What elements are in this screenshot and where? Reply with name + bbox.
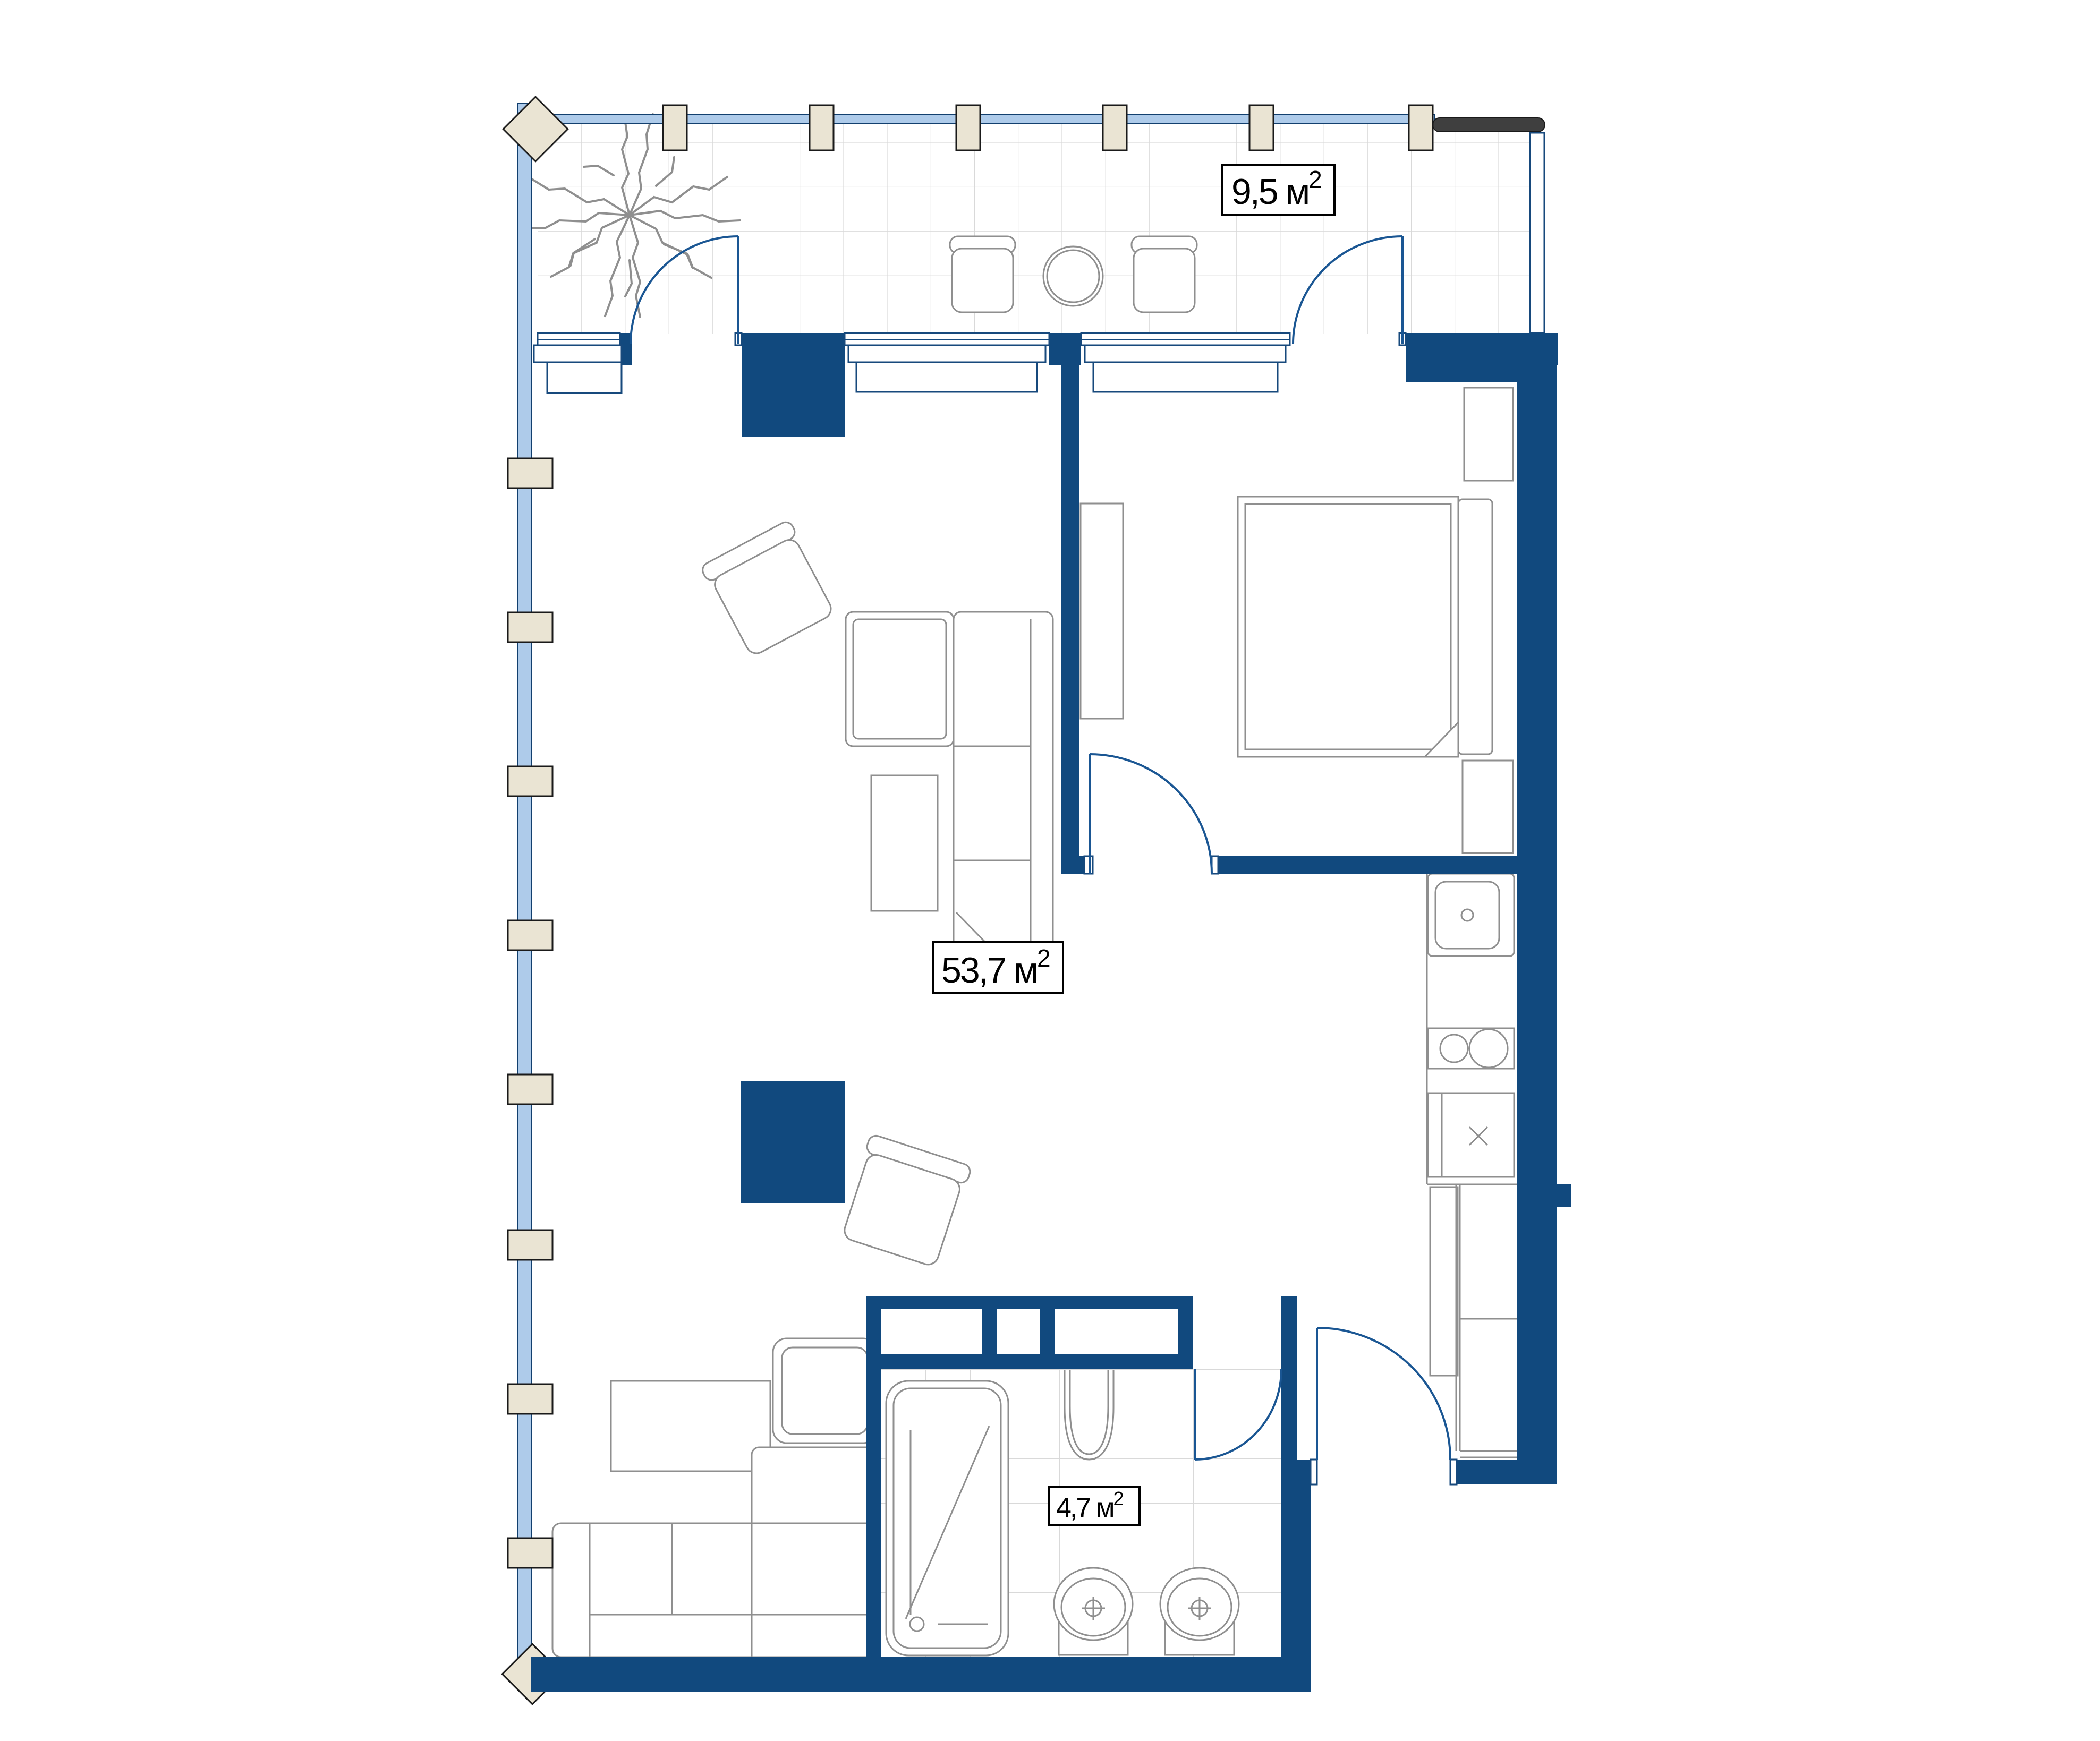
armchair — [838, 1134, 972, 1269]
wall-bathroom-left — [866, 1296, 881, 1692]
partition-head — [1049, 333, 1081, 365]
dishwasher — [1428, 1093, 1514, 1177]
coffee-table — [611, 1381, 770, 1471]
toilet — [1065, 1370, 1113, 1460]
armchair — [700, 519, 838, 659]
sofa-corner — [552, 1447, 877, 1657]
wall-bathroom-top — [881, 1296, 1193, 1309]
dresser — [1081, 503, 1123, 719]
balcony-side-frame — [1530, 133, 1544, 333]
wall-bedroom-bottom — [1218, 856, 1517, 874]
area-label-living: 53,7 м2 — [933, 942, 1063, 993]
bathroom-sink — [1054, 1568, 1133, 1655]
partition-bedroom — [1061, 365, 1079, 874]
balcony-floor — [538, 123, 1530, 334]
svg-text:53,7 м2: 53,7 м2 — [941, 944, 1050, 991]
area-label-balcony: 9,5 м2 — [1222, 165, 1334, 215]
wall-bathroom-right — [1281, 1296, 1297, 1460]
pier-column — [742, 333, 845, 437]
balcony-table — [1043, 246, 1103, 306]
coffee-table — [871, 775, 938, 911]
kitchen-counter — [1427, 874, 1517, 1184]
radiator — [1093, 362, 1278, 392]
door-jamb — [1450, 1460, 1457, 1484]
radiator — [856, 362, 1037, 392]
balcony-chair — [950, 236, 1015, 312]
bed — [1238, 497, 1492, 757]
vent-shaft-divider — [982, 1309, 997, 1354]
nightstand — [1463, 761, 1513, 853]
bathtub — [886, 1381, 1008, 1655]
balcony-chair — [1132, 236, 1197, 312]
window-wall-left — [518, 104, 531, 1673]
vent-shaft-divider — [1178, 1309, 1193, 1354]
window-sill — [534, 345, 622, 362]
wall-entry-bottom — [1457, 1460, 1557, 1484]
pier-column — [741, 1081, 845, 1203]
wall-bottom — [531, 1657, 1311, 1692]
area-label-bathroom: 4,7 м2 — [1049, 1487, 1140, 1525]
nightstand — [1464, 388, 1513, 481]
windows-top — [534, 333, 1406, 393]
wall-right — [1517, 333, 1557, 1484]
balcony-railing — [1433, 118, 1545, 132]
window-sill — [848, 345, 1045, 362]
svg-text:9,5 м2: 9,5 м2 — [1231, 166, 1321, 212]
lounge-chair — [773, 1338, 877, 1443]
vent-shaft-divider — [1040, 1309, 1055, 1354]
bedroom-door — [1084, 754, 1218, 874]
window-sill — [1085, 345, 1286, 362]
door-jamb — [1311, 1460, 1317, 1484]
floor-plan-canvas: 9,5 м2 53,7 м2 4,7 м2 — [0, 0, 2100, 1741]
bathroom-sink — [1160, 1568, 1239, 1655]
radiator — [547, 362, 622, 393]
